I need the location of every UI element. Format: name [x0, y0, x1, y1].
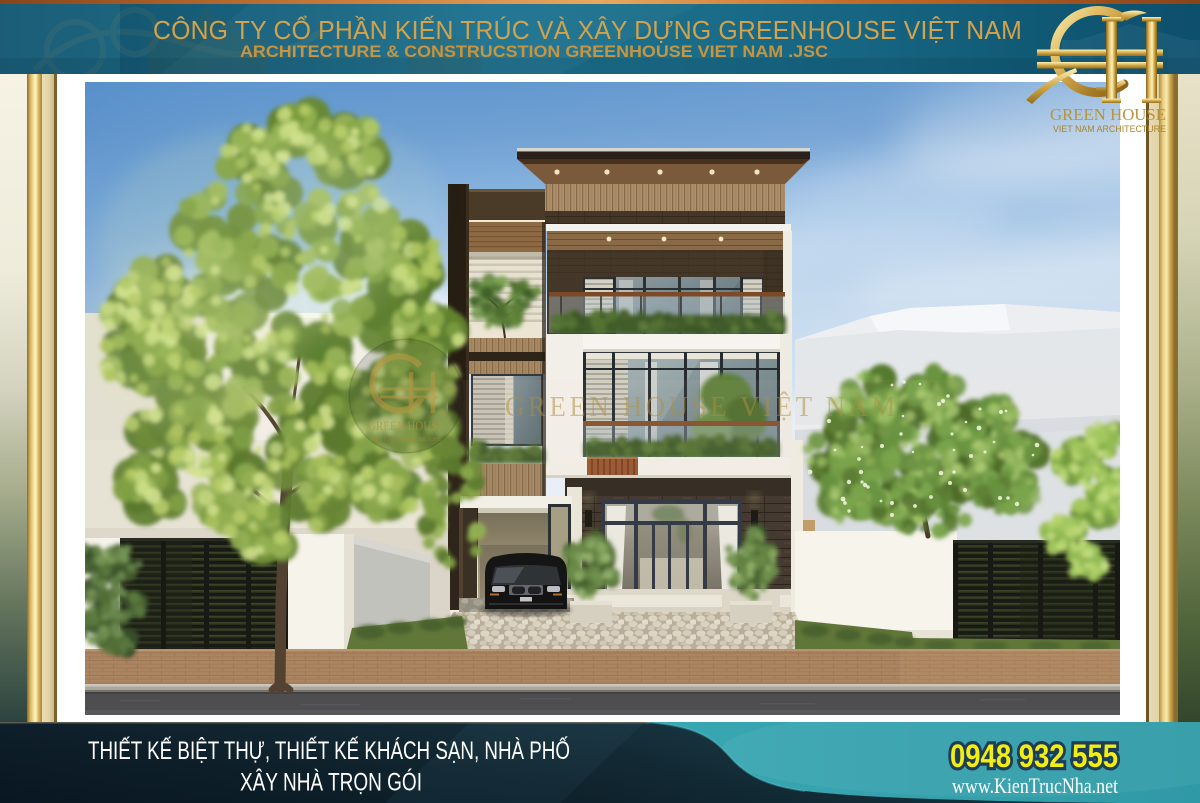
svg-text:THIẾT KẾ BIỆT THỰ, THIẾT KẾ KH: THIẾT KẾ BIỆT THỰ, THIẾT KẾ KHÁCH SẠN, N…: [88, 735, 570, 765]
svg-text:XÂY NHÀ TRỌN GÓI: XÂY NHÀ TRỌN GÓI: [240, 768, 422, 797]
svg-text:www.KienTrucNha.net: www.KienTrucNha.net: [952, 773, 1118, 798]
svg-text:GREEN HOUSE: GREEN HOUSE: [368, 419, 444, 433]
svg-text:CÔNG TY CỔ PHẦN KIẾN TRÚC VÀ X: CÔNG TY CỔ PHẦN KIẾN TRÚC VÀ XÂY DỰNG GR…: [153, 15, 1022, 45]
svg-text:VIET NAM ARCHITECTURE: VIET NAM ARCHITECTURE: [1053, 124, 1166, 134]
svg-text:ARCHITECTURE & CONSTRUCSTION G: ARCHITECTURE & CONSTRUCSTION GREENHOUSE …: [240, 42, 828, 61]
svg-text:VIET NAM ARCHITECTURE: VIET NAM ARCHITECTURE: [370, 437, 442, 443]
svg-text:0948 932 555: 0948 932 555: [950, 738, 1118, 774]
svg-text:GREEN HOUSE VIỆT NAM: GREEN HOUSE VIỆT NAM: [505, 390, 899, 423]
svg-text:GREEN HOUSE: GREEN HOUSE: [1050, 105, 1166, 124]
